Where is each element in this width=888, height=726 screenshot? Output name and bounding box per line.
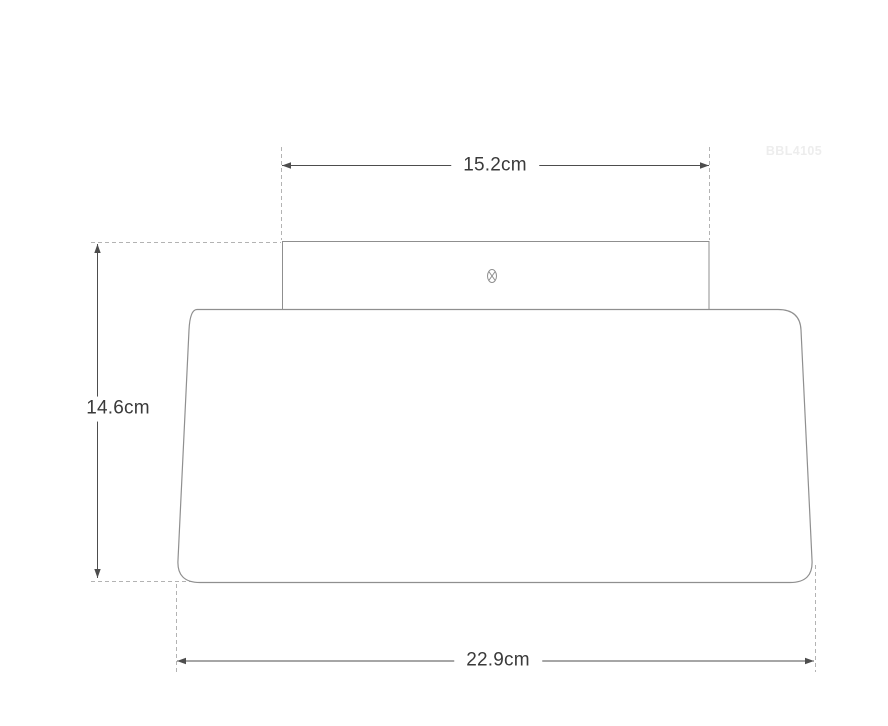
dimension-label-bottom-width: 22.9cm — [454, 649, 542, 674]
arrowhead-top-left-icon — [282, 162, 291, 168]
arrowhead-height-up-icon — [94, 244, 100, 253]
product-code-watermark: BBL4105 — [766, 144, 822, 158]
lamp-shade-outline — [178, 310, 812, 583]
dimension-label-top-width: 15.2cm — [451, 154, 539, 179]
technical-drawing-canvas: 15.2cm 14.6cm 22.9cm BBL4105 — [0, 0, 888, 726]
arrowhead-height-down-icon — [94, 569, 100, 578]
arrowhead-bottom-right-icon — [805, 658, 814, 664]
fixture-dimension-drawing — [0, 0, 888, 726]
mounting-plate-outline — [283, 242, 710, 310]
dimension-label-height: 14.6cm — [74, 397, 162, 422]
arrowhead-bottom-left-icon — [177, 658, 186, 664]
arrowhead-top-right-icon — [700, 162, 709, 168]
